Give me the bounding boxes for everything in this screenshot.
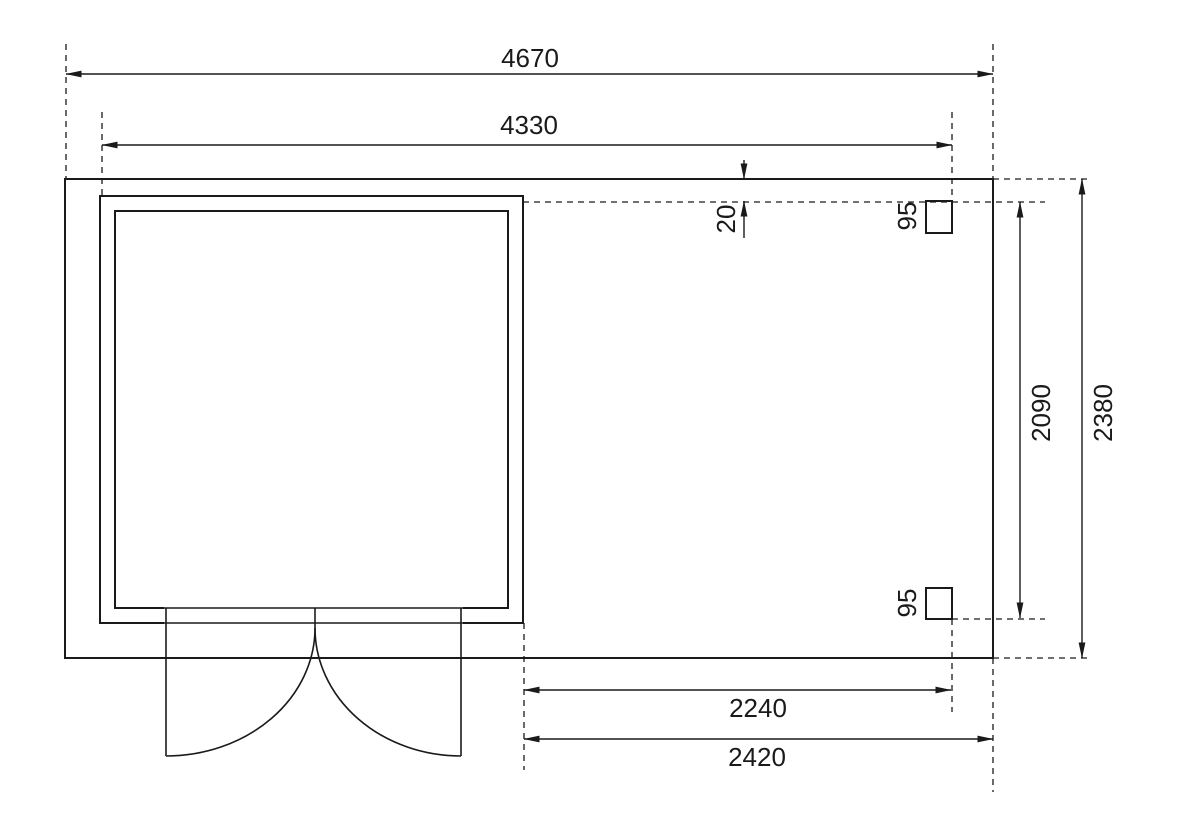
canopy-posts: [926, 201, 952, 619]
door-swing-arc-right: [315, 628, 461, 756]
dimension-labels: 4670 4330 20 95 95 2090 2380 2240 2420: [500, 43, 1118, 772]
dim-label-shed-outer-width: 4330: [500, 110, 558, 140]
floor-plan-drawing: 4670 4330 20 95 95 2090 2380 2240 2420: [0, 0, 1178, 818]
dim-label-canopy-post-width: 2240: [729, 693, 787, 723]
dim-label-overall-width: 4670: [501, 43, 559, 73]
floor-slab-outline: [65, 179, 993, 658]
drawing-canvas: 4670 4330 20 95 95 2090 2380 2240 2420: [0, 0, 1178, 818]
dim-label-canopy-width: 2420: [728, 742, 786, 772]
door-swing-arc-left: [166, 628, 315, 756]
dim-label-post-span-depth: 2090: [1026, 384, 1056, 442]
shed: [100, 196, 523, 623]
shed-outer-wall: [100, 196, 523, 623]
double-door: [164, 606, 463, 756]
dim-label-overall-depth: 2380: [1088, 384, 1118, 442]
dim-label-post-top: 95: [892, 202, 922, 231]
shed-interior: [115, 211, 508, 608]
floor-slab: [65, 179, 993, 658]
dimension-lines: [66, 74, 1082, 739]
post-bottom-right: [926, 588, 952, 619]
post-top-right: [926, 201, 952, 233]
extension-lines: [66, 44, 1090, 792]
door-opening: [164, 606, 463, 625]
dim-label-post-bottom: 95: [892, 589, 922, 618]
dim-label-front-offset: 20: [711, 205, 741, 234]
